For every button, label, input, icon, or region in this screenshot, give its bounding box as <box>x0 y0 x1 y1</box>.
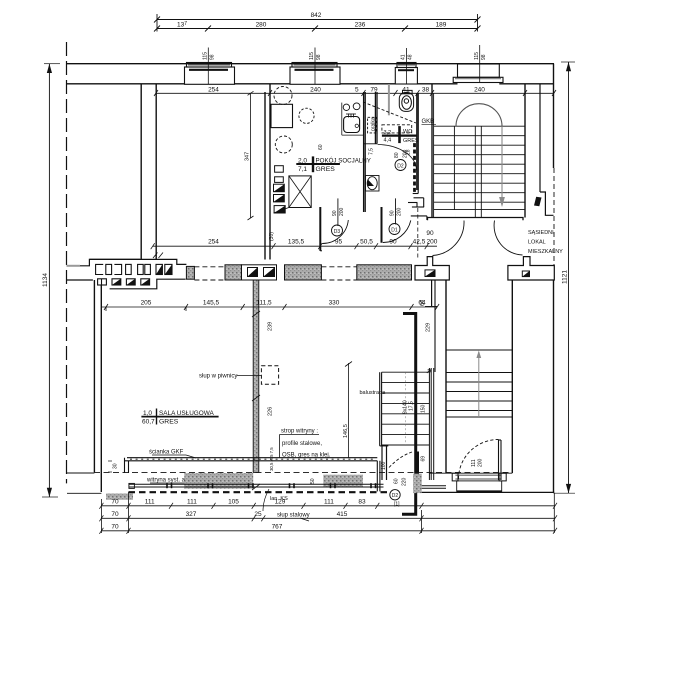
svg-text:239: 239 <box>268 322 274 331</box>
svg-text:98: 98 <box>481 54 487 60</box>
svg-text:254: 254 <box>208 87 219 94</box>
svg-text:115: 115 <box>474 52 480 60</box>
svg-text:90: 90 <box>426 230 434 237</box>
svg-text:1,0: 1,0 <box>143 410 152 417</box>
svg-text:240: 240 <box>310 87 321 94</box>
svg-text:98: 98 <box>210 54 216 60</box>
svg-text:D2: D2 <box>392 493 399 499</box>
svg-text:229: 229 <box>426 323 432 332</box>
svg-text:ścianka GKF: ścianka GKF <box>149 450 184 456</box>
svg-text:200: 200 <box>403 149 409 158</box>
svg-text:2,0: 2,0 <box>298 158 307 165</box>
svg-text:GRES: GRES <box>316 166 336 173</box>
svg-text:105: 105 <box>228 499 239 506</box>
svg-text:30: 30 <box>113 463 119 469</box>
svg-text:415: 415 <box>337 511 348 518</box>
svg-text:115: 115 <box>309 52 315 60</box>
svg-text:327: 327 <box>186 511 197 518</box>
svg-text:pralka: pralka <box>371 117 377 131</box>
svg-text:100: 100 <box>381 461 387 470</box>
svg-text:D2: D2 <box>397 163 404 169</box>
svg-text:111: 111 <box>187 499 197 506</box>
svg-text:SĄSIEDNI: SĄSIEDNI <box>528 230 554 236</box>
svg-text:115: 115 <box>203 52 209 60</box>
svg-text:69: 69 <box>421 456 427 462</box>
svg-text:200: 200 <box>339 207 345 216</box>
svg-text:50,5: 50,5 <box>360 239 373 246</box>
svg-text:GRES: GRES <box>159 419 179 426</box>
svg-text:7,5: 7,5 <box>369 148 375 155</box>
svg-text:83: 83 <box>358 499 366 506</box>
svg-text:90: 90 <box>389 210 395 216</box>
svg-text:7,1: 7,1 <box>298 166 307 173</box>
svg-text:137: 137 <box>177 21 187 29</box>
svg-text:60,7: 60,7 <box>142 419 155 426</box>
svg-text:strop witryny :: strop witryny : <box>281 429 318 435</box>
svg-text:200: 200 <box>397 207 403 216</box>
svg-text:30,5 x15 7,5: 30,5 x15 7,5 <box>269 447 274 471</box>
svg-text:200: 200 <box>427 239 438 246</box>
svg-text:48: 48 <box>408 54 414 60</box>
svg-text:205: 205 <box>141 300 152 307</box>
svg-text:25: 25 <box>254 511 262 518</box>
svg-text:240: 240 <box>474 87 485 94</box>
svg-text:SALA USŁUGOWA: SALA USŁUGOWA <box>159 410 215 417</box>
svg-text:41: 41 <box>401 54 407 60</box>
svg-text:D1: D1 <box>391 227 398 233</box>
svg-text:90: 90 <box>332 210 338 216</box>
svg-text:200: 200 <box>478 458 484 467</box>
svg-text:D3: D3 <box>334 229 341 235</box>
svg-text:3,2: 3,2 <box>384 130 392 136</box>
svg-text:330: 330 <box>329 300 340 307</box>
svg-text:80: 80 <box>394 152 400 158</box>
svg-text:146,5: 146,5 <box>343 424 349 438</box>
svg-text:1121: 1121 <box>562 270 569 284</box>
svg-text:1134: 1134 <box>42 273 49 287</box>
svg-text:60: 60 <box>394 478 400 484</box>
svg-text:70: 70 <box>111 499 119 506</box>
svg-text:OSB, gres na klej.: OSB, gres na klej. <box>282 453 331 459</box>
svg-text:767: 767 <box>272 524 283 531</box>
svg-text:135,5: 135,5 <box>288 239 305 246</box>
svg-text:236: 236 <box>355 22 366 29</box>
svg-text:balustrada: balustrada <box>360 390 387 396</box>
svg-text:254: 254 <box>208 239 219 246</box>
svg-text:60: 60 <box>318 144 324 150</box>
svg-text:4,4: 4,4 <box>384 138 392 144</box>
svg-text:LOKAL: LOKAL <box>528 240 546 246</box>
svg-text:50: 50 <box>310 478 316 484</box>
svg-text:226: 226 <box>268 407 274 416</box>
svg-text:(30): (30) <box>269 232 275 241</box>
svg-text:220: 220 <box>402 477 408 486</box>
svg-text:842: 842 <box>311 12 322 19</box>
svg-text:WC: WC <box>403 129 412 135</box>
svg-text:profile stalowe,: profile stalowe, <box>282 441 322 447</box>
svg-text:[1]: [1] <box>394 502 400 508</box>
svg-text:111: 111 <box>324 499 334 506</box>
svg-text:280: 280 <box>256 22 267 29</box>
svg-text:111,5: 111,5 <box>256 300 272 307</box>
svg-text:111: 111 <box>471 459 477 467</box>
svg-text:42,5: 42,5 <box>413 239 426 246</box>
svg-text:64: 64 <box>420 300 426 306</box>
svg-text:70: 70 <box>111 511 119 518</box>
svg-text:129: 129 <box>275 499 286 506</box>
svg-text:MIESZKALNY: MIESZKALNY <box>528 249 563 255</box>
svg-text:111: 111 <box>145 499 155 506</box>
svg-text:70: 70 <box>111 524 119 531</box>
svg-text:słup stalowy: słup stalowy <box>277 513 310 519</box>
svg-text:150: 150 <box>421 404 427 413</box>
svg-text:słup w piwnicy: słup w piwnicy <box>199 374 237 380</box>
svg-text:347: 347 <box>245 152 251 161</box>
svg-text:145,5: 145,5 <box>203 300 220 307</box>
svg-text:POKÓJ SOCJALNY: POKÓJ SOCJALNY <box>316 158 371 165</box>
svg-text:98: 98 <box>316 54 322 60</box>
svg-text:38: 38 <box>422 87 430 94</box>
svg-text:GRES: GRES <box>403 138 419 144</box>
svg-text:189: 189 <box>436 22 447 29</box>
svg-text:5: 5 <box>355 87 359 94</box>
svg-text:17,5: 17,5 <box>409 401 415 411</box>
